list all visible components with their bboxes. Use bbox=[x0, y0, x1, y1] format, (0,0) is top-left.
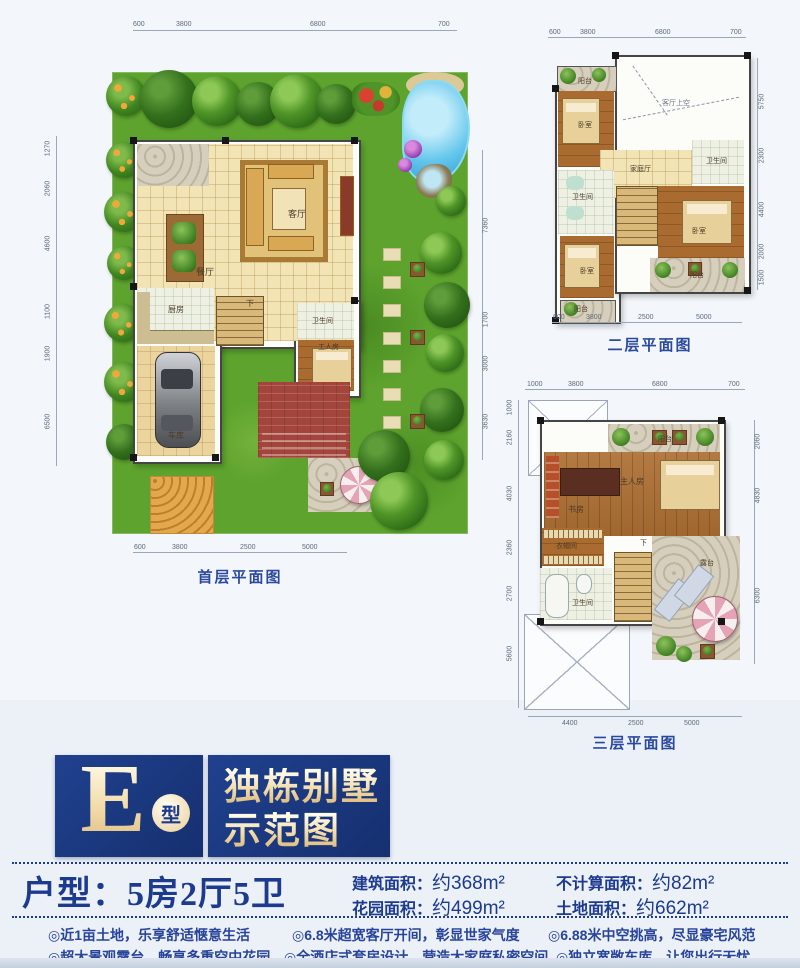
dim-label: 2060 bbox=[45, 169, 52, 209]
stairs-label: 下 bbox=[640, 540, 647, 547]
room-label-maid: 工人房 bbox=[318, 344, 339, 351]
desk bbox=[560, 468, 620, 496]
room-label: 卧室 bbox=[580, 268, 594, 275]
porch-steps bbox=[262, 430, 346, 456]
planter-icon bbox=[410, 262, 425, 277]
dim-label: 6800 bbox=[652, 381, 668, 388]
dim-label: 2500 bbox=[628, 720, 644, 727]
dim-label: 600 bbox=[549, 29, 561, 36]
dim-label: 2360 bbox=[507, 528, 514, 568]
room-label: 卫生间 bbox=[572, 194, 593, 201]
dining-chair bbox=[172, 222, 196, 244]
dim-label: 7360 bbox=[483, 206, 490, 246]
dim-label: 600 bbox=[133, 21, 145, 28]
dim-label: 600 bbox=[134, 544, 146, 551]
wardrobe bbox=[544, 530, 602, 538]
column bbox=[212, 454, 219, 461]
dim-label: 5000 bbox=[684, 720, 700, 727]
wardrobe bbox=[544, 556, 602, 564]
dim-label: 5750 bbox=[759, 82, 766, 122]
stairs bbox=[216, 296, 264, 346]
feature-item: ◎6.8米超宽客厅开间，彰显世家气度 bbox=[292, 925, 520, 945]
kitchen-counter bbox=[137, 330, 214, 344]
dim-label: 2700 bbox=[507, 574, 514, 614]
roof bbox=[524, 614, 630, 710]
second-floor-title: 二层平面图 bbox=[575, 334, 725, 355]
type-circle-label: 型 bbox=[161, 799, 181, 828]
first-floor-title: 首层平面图 bbox=[140, 566, 340, 587]
planter-icon bbox=[672, 430, 687, 445]
dining-chair bbox=[172, 250, 196, 272]
feature-item: ◎6.88米中空挑高，尽显豪宅风范 bbox=[548, 925, 755, 945]
divider bbox=[12, 916, 788, 918]
room-label: 家庭厅 bbox=[630, 166, 651, 173]
column bbox=[744, 52, 751, 59]
type-circle-badge: 型 bbox=[152, 794, 190, 832]
dim-label: 3800 bbox=[172, 544, 188, 551]
dim-label: 1700 bbox=[483, 300, 490, 340]
room-label-bath: 卫生间 bbox=[312, 318, 333, 325]
room-label: 阳台 bbox=[690, 272, 704, 279]
dim-label: 5000 bbox=[696, 314, 712, 321]
garden-path bbox=[150, 476, 214, 534]
planter-icon bbox=[410, 414, 425, 429]
column bbox=[130, 454, 137, 461]
plant-icon bbox=[656, 636, 676, 656]
dimension-line bbox=[133, 552, 347, 553]
tree-icon bbox=[316, 84, 356, 124]
room-label-kitchen: 厨房 bbox=[168, 306, 184, 314]
feature-item: ◎近1亩土地，乐享舒适惬意生活 bbox=[48, 925, 250, 945]
tree-icon bbox=[370, 472, 428, 530]
stepping-stone bbox=[383, 304, 401, 317]
dimension-line bbox=[552, 322, 742, 323]
spec-label: 建筑面积： bbox=[352, 876, 432, 893]
dimension-line bbox=[56, 136, 57, 466]
dim-label: 4030 bbox=[507, 474, 514, 514]
dim-label: 5000 bbox=[302, 544, 318, 551]
tree-icon bbox=[420, 388, 464, 432]
dim-label: 6500 bbox=[45, 402, 52, 442]
flower-shrub bbox=[398, 158, 412, 172]
dim-label: 3630 bbox=[483, 402, 490, 442]
umbrella-icon bbox=[692, 596, 738, 642]
dim-label: 4600 bbox=[45, 224, 52, 264]
stepping-stone bbox=[383, 388, 401, 401]
column bbox=[612, 52, 619, 59]
bathtub bbox=[545, 574, 569, 618]
dim-label: 600 bbox=[553, 314, 565, 321]
room-label: 卫生间 bbox=[572, 600, 593, 607]
dim-label: 4400 bbox=[562, 720, 578, 727]
dim-label: 700 bbox=[438, 21, 450, 28]
tree-icon bbox=[424, 440, 464, 480]
bed bbox=[682, 200, 732, 244]
dim-label: 5600 bbox=[507, 634, 514, 674]
column bbox=[130, 137, 137, 144]
dim-label: 4830 bbox=[755, 476, 762, 516]
dim-label: 1100 bbox=[45, 292, 52, 332]
column bbox=[130, 283, 137, 290]
dim-label: 1000 bbox=[527, 381, 543, 388]
dim-label: 2500 bbox=[240, 544, 256, 551]
bath-fixture bbox=[566, 176, 584, 190]
bed bbox=[562, 98, 600, 144]
tree-icon bbox=[436, 186, 466, 216]
spec-item: 不计算面积：约82m² bbox=[556, 868, 714, 895]
planter-icon bbox=[700, 644, 715, 659]
room-label-void: 客厅上空 bbox=[662, 100, 690, 107]
dimension-line bbox=[528, 716, 742, 717]
spec-value: 约368m² bbox=[432, 873, 505, 894]
divider bbox=[12, 862, 788, 864]
banner-title-line1: 独栋别墅 bbox=[224, 768, 384, 805]
bottom-strip bbox=[0, 958, 800, 968]
dim-label: 3000 bbox=[483, 344, 490, 384]
spec-item: 建筑面积：约368m² bbox=[352, 868, 505, 895]
plant-icon bbox=[696, 428, 714, 446]
toilet bbox=[576, 574, 592, 594]
planter-icon bbox=[410, 330, 425, 345]
column bbox=[351, 137, 358, 144]
dim-label: 3800 bbox=[586, 314, 602, 321]
poster: 600 3800 6800 700 1270 2060 4600 1100 19… bbox=[0, 0, 800, 968]
room-label: 卫生间 bbox=[706, 158, 727, 165]
sofa bbox=[268, 236, 314, 251]
room-label-living: 客厅 bbox=[288, 210, 306, 219]
column bbox=[744, 287, 751, 294]
plant-icon bbox=[655, 262, 671, 278]
stepping-stone bbox=[383, 332, 401, 345]
column bbox=[552, 85, 559, 92]
room-label: 卧室 bbox=[578, 122, 592, 129]
sofa bbox=[268, 164, 314, 179]
room-label-dining: 餐厅 bbox=[196, 268, 214, 277]
dim-label: 6300 bbox=[755, 576, 762, 616]
stepping-stone bbox=[383, 248, 401, 261]
flower-shrub bbox=[404, 140, 422, 158]
type-letter: E bbox=[68, 748, 158, 851]
plant-icon bbox=[560, 68, 576, 84]
tree-icon bbox=[424, 282, 470, 328]
dim-label: 3800 bbox=[568, 381, 584, 388]
flowerbed bbox=[352, 82, 400, 116]
third-floor-title: 三层平面图 bbox=[560, 732, 710, 753]
tree-icon bbox=[192, 76, 242, 126]
dim-label: 1500 bbox=[759, 258, 766, 298]
dim-label: 6800 bbox=[655, 29, 671, 36]
dim-label: 4400 bbox=[759, 190, 766, 230]
huxing-text: 户型：5房2厅5卫 bbox=[22, 866, 286, 915]
dim-label: 6800 bbox=[310, 21, 326, 28]
plant-icon bbox=[676, 646, 692, 662]
stairs bbox=[614, 552, 652, 622]
banner-title-line2: 示范图 bbox=[224, 812, 384, 849]
room-label: 阳台 bbox=[578, 78, 592, 85]
dimension-line bbox=[518, 400, 519, 708]
spec-label: 不计算面积： bbox=[556, 876, 652, 893]
dim-label: 700 bbox=[730, 29, 742, 36]
bed bbox=[660, 460, 720, 510]
stepping-stone bbox=[383, 276, 401, 289]
stepping-stone bbox=[383, 416, 401, 429]
column bbox=[718, 417, 725, 424]
bed bbox=[564, 244, 600, 288]
bookshelf bbox=[546, 456, 559, 518]
bath-fixture bbox=[566, 206, 584, 220]
plant-icon bbox=[722, 262, 738, 278]
dimension-line bbox=[525, 389, 745, 390]
room-label: 主人房 bbox=[620, 478, 644, 486]
dim-label: 2500 bbox=[638, 314, 654, 321]
dim-label: 2060 bbox=[755, 422, 762, 462]
column bbox=[222, 137, 229, 144]
room-label: 阳台 bbox=[574, 306, 588, 313]
dimension-line bbox=[548, 37, 746, 38]
column bbox=[718, 618, 725, 625]
tree-icon bbox=[420, 232, 462, 274]
entry-stone bbox=[137, 144, 209, 186]
plant-icon bbox=[612, 428, 630, 446]
dim-label: 3800 bbox=[580, 29, 596, 36]
plant-icon bbox=[592, 68, 606, 82]
stepping-stone bbox=[383, 360, 401, 373]
kitchen-counter bbox=[137, 292, 150, 332]
dim-label: 700 bbox=[728, 381, 740, 388]
dimension-line bbox=[133, 30, 457, 31]
patio-table bbox=[320, 482, 334, 496]
tv-cabinet bbox=[340, 176, 354, 236]
room-label: 书房 bbox=[568, 506, 584, 514]
room-label: 衣帽间 bbox=[556, 543, 577, 550]
column bbox=[537, 417, 544, 424]
sofa bbox=[246, 168, 264, 246]
dim-label: 3800 bbox=[176, 21, 192, 28]
stairs bbox=[616, 186, 658, 246]
column bbox=[351, 297, 358, 304]
room-label-garage: 车库 bbox=[168, 432, 184, 440]
tree-icon bbox=[426, 334, 464, 372]
column bbox=[537, 618, 544, 625]
dim-label: 2160 bbox=[507, 418, 514, 458]
dim-label: 1900 bbox=[45, 334, 52, 374]
stairs-label: 下 bbox=[246, 300, 254, 308]
room-label: 阳台 bbox=[658, 436, 672, 443]
spec-value: 约82m² bbox=[652, 873, 714, 894]
tree-icon bbox=[140, 70, 198, 128]
room-label: 露台 bbox=[700, 560, 714, 567]
dim-label: 2300 bbox=[759, 136, 766, 176]
dim-label: 1270 bbox=[45, 129, 52, 169]
room-label: 卧室 bbox=[692, 228, 706, 235]
